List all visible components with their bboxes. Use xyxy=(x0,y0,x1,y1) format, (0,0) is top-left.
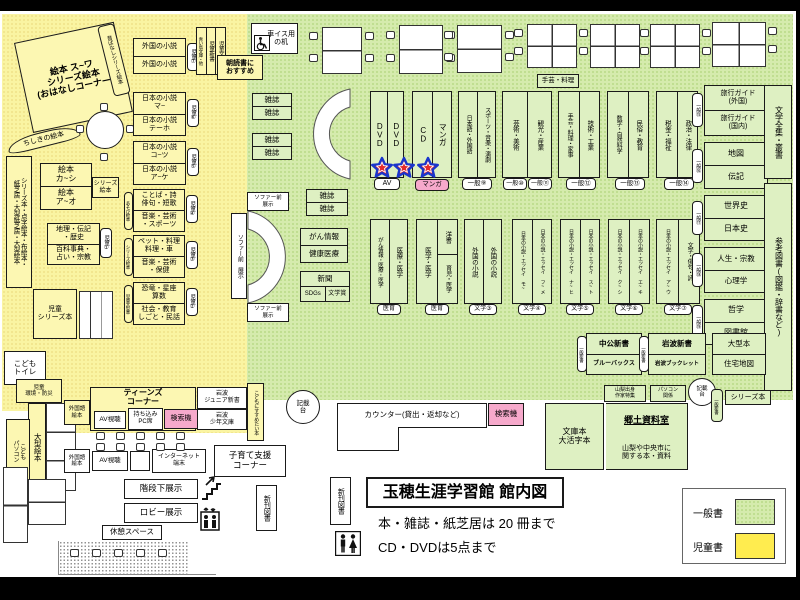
shelf-literature-collections: 文学全集・叢書 xyxy=(764,85,792,179)
sofa-front-display-top: ソファー前 展示 xyxy=(247,192,289,211)
wall-line xyxy=(58,574,216,575)
shelf-maps-biography: 地図伝記 xyxy=(704,142,768,189)
chair xyxy=(768,45,777,53)
kids-environment-shelf: 児童 環境・防災 xyxy=(16,379,62,403)
shelf-general-12: 手芸・料理・家事技術・工業 xyxy=(558,91,600,178)
shelf-dino-society: 恐竜・星座 算数社会・教育 しごと・民話 xyxy=(133,282,185,325)
round-table xyxy=(86,111,124,149)
chair xyxy=(70,549,79,557)
chair xyxy=(768,27,777,35)
service-counter: カウンター(貸出・返却など) xyxy=(337,403,487,428)
chair xyxy=(514,29,523,37)
label-literature-6: 文学⑥ xyxy=(615,304,643,315)
legend-children-label: 児童書 xyxy=(693,539,723,554)
table xyxy=(28,479,66,525)
shelf-travel-guides: 旅行ガイド (外国)旅行ガイド (国内) xyxy=(704,85,772,136)
chair xyxy=(514,47,523,55)
label-literature-5: 文学⑤ xyxy=(566,304,594,315)
search-terminal-teens: 検索機 xyxy=(164,409,198,429)
chair xyxy=(702,29,711,37)
sofa-front-display-side: ソファー前 展示 xyxy=(231,213,247,299)
chair xyxy=(505,31,514,39)
cancer-info-shelf: がん情報健康医療 xyxy=(300,228,348,263)
chair xyxy=(156,443,165,451)
shelf-geo-encyclopedia: 地理・伝記 ・歴史百科事典・ 占い・宗教 xyxy=(47,223,100,265)
table xyxy=(322,27,362,74)
bungakusho-cell: 文学賞 xyxy=(325,287,350,301)
chair xyxy=(136,432,145,440)
chair xyxy=(309,32,318,40)
chair xyxy=(96,432,105,440)
shelf-ehon-aiueo: 絵本 カ~シ絵本 ア~オ xyxy=(40,163,92,210)
label-general-16: 一般⑯ xyxy=(692,149,703,183)
shelf-literature-3: 外国の小説外国の小説 xyxy=(464,219,502,304)
chair xyxy=(96,443,105,451)
new-books-shelf-2: 新刊図書 xyxy=(330,477,351,525)
computer-books-shelf: パソコン 関係 xyxy=(650,385,686,402)
sofa-crescent-lower xyxy=(246,209,288,305)
elevator-icon xyxy=(200,507,220,531)
star-icon xyxy=(370,156,394,180)
foreign-picture-books-1: 外国語 絵本 xyxy=(64,400,90,425)
shelf-life-psychology: 人生・宗教心理学 xyxy=(704,247,768,293)
shelf-large-books-housing-maps: 大型本住宅地図 xyxy=(712,333,766,375)
restroom-icon xyxy=(335,531,361,556)
series-books-shelf: シリーズ本 xyxy=(725,390,771,405)
rule-note-2: CD・DVDは5点まで xyxy=(378,537,496,556)
chair xyxy=(100,103,108,111)
legend-children-swatch xyxy=(735,533,775,559)
series-ehon-box: シリーズ 絵本 xyxy=(92,177,119,198)
label-general-9: 一般⑨ xyxy=(462,178,492,190)
writing-desk-1: 記載 台 xyxy=(286,390,320,424)
label-literature-7: 文学⑦ xyxy=(664,304,692,315)
sofa-crescent-upper xyxy=(312,87,352,181)
shelf-world-japan-history: 世界史日本史 xyxy=(704,195,768,241)
label-general-11: 一般⑪ xyxy=(528,178,552,190)
chair xyxy=(640,47,649,55)
label-general-17: 一般⑰ xyxy=(692,201,703,235)
label-literature-3: 文学③ xyxy=(469,304,497,315)
service-counter-wing xyxy=(337,427,399,451)
shelf-unit xyxy=(79,291,113,339)
yamanashi-authors-shelf: 山梨出身 作家特集 xyxy=(604,385,646,402)
shelf-jp-fiction-ma: 日本の小説 マ~日本の小説 テーホ xyxy=(133,92,186,136)
chair xyxy=(386,31,395,39)
label-medical-1: 医育 xyxy=(377,304,401,315)
category-pill-jido4: 児童④ xyxy=(186,195,198,223)
parenting-support-corner: 子育て支援 コーナー xyxy=(214,445,286,477)
chair xyxy=(579,47,588,55)
shelf-general-13: 数学・自然科学民俗・教育 xyxy=(607,91,649,178)
chair xyxy=(136,443,145,451)
chair xyxy=(505,53,514,61)
label-ippan-shinsho-3: 一般新書 xyxy=(711,389,723,422)
shelf-medical-2: 医学・医学 洋書 育児・医学 xyxy=(416,219,458,304)
category-pill-jido6: 児童⑥ xyxy=(187,99,199,127)
under-stairs-display: 階段下展示 xyxy=(124,479,198,499)
shelf-jp-fiction-ko: 日本の小説 コ~ツ日本の小説 ア~ケ xyxy=(133,141,186,185)
chair xyxy=(176,432,185,440)
shelf-literature-5: 日本の小説・エッセイ ナ~ヒ日本の小説・エッセイ ス~ト xyxy=(560,219,600,304)
kids-series-shelf: 児童 シリーズ本 xyxy=(33,289,77,339)
table xyxy=(712,22,766,67)
chair xyxy=(114,549,123,557)
label-general-15: 一般⑮ xyxy=(692,93,703,127)
label-ippan-shinsho-1: 一般新書 xyxy=(577,336,587,372)
label-literature-4: 文学④ xyxy=(518,304,546,315)
chair xyxy=(365,54,374,62)
label-general-12: 一般⑫ xyxy=(566,178,596,190)
chair xyxy=(444,31,453,39)
shelf-medical-1: がん情報・医療・医学医療・医学 xyxy=(370,219,408,304)
local-history-room: 郷土資料室 山梨や中央市に 関する本・資料 xyxy=(606,403,688,470)
sdgs-cell: SDGs xyxy=(301,287,325,301)
magazine-shelf-1: 雑誌雑誌 xyxy=(252,93,292,120)
legend: 一般書 児童書 xyxy=(682,488,786,564)
chair xyxy=(158,549,167,557)
kids-large-books-pill: 児童大型本 xyxy=(124,285,133,323)
chair xyxy=(309,54,318,62)
morning-reading-box: 朝読書に おすすめ xyxy=(217,55,263,80)
star-icon xyxy=(416,156,440,180)
shelf-general-9: 日本語・外国語スポーツ・音楽・演劇 xyxy=(458,91,496,178)
table xyxy=(527,24,577,68)
map-title: 玉穂生涯学習館 館内図 xyxy=(366,477,564,508)
rest-space-floor xyxy=(58,541,188,575)
av-booth-2: AV視聴 xyxy=(92,451,128,471)
table xyxy=(650,24,700,68)
rule-note-1: 本・雑誌・紙芝居は 20 冊まで xyxy=(378,513,556,532)
label-general-14: 一般⑭ xyxy=(664,178,694,190)
internet-terminal: インターネット 端末 xyxy=(152,449,206,473)
chair xyxy=(176,443,185,451)
star-icon xyxy=(392,156,416,180)
label-general-18: 一般⑱ xyxy=(692,253,703,287)
shelf-general-10-11: 芸術・美術観光・産業 xyxy=(502,91,552,178)
foreign-picture-books-2: 外国語 絵本 xyxy=(64,449,90,473)
shelf-reference-books: 参考図書(図鑑・辞書など) xyxy=(764,183,792,391)
table xyxy=(590,24,640,68)
newspaper-shelf: 新聞 SDGs文学賞 xyxy=(300,271,350,302)
chair xyxy=(100,153,108,161)
magazine-shelf-3: 雑誌雑誌 xyxy=(306,189,348,216)
shelf-pets-cooking: ペット・料理 料理・車音楽・芸術 ・保健 xyxy=(133,235,185,278)
shelf-literature-4: 日本の小説・エッセイ モ~日本の小説・エッセイ フ~メ xyxy=(512,219,552,304)
chair xyxy=(365,32,374,40)
table xyxy=(457,25,502,73)
table xyxy=(3,467,28,543)
handicraft-cooking-sign: 手芸・料理 xyxy=(537,74,579,88)
booth-blank xyxy=(130,451,150,471)
chair xyxy=(136,549,145,557)
category-pill-jido1: 児童① xyxy=(100,228,112,258)
chair xyxy=(386,54,395,62)
shelf-words-poetry: ことば・詩 俳句・短歌音楽・芸術 ・スポーツ xyxy=(133,189,185,232)
chair xyxy=(116,432,125,440)
recommended-kids-books: こどもにすすめたい本 xyxy=(247,383,264,441)
chair xyxy=(92,549,101,557)
chair xyxy=(116,443,125,451)
new-books-shelf-1: 新刊図書 xyxy=(256,485,277,531)
chair xyxy=(579,29,588,37)
rest-space-label: 休憩スペース xyxy=(102,525,162,540)
category-pill-jido2: 児童② xyxy=(186,288,198,316)
stairs-icon xyxy=(200,475,222,501)
shelf-iwanami-shinsho: 岩波新書岩波ブックレット xyxy=(648,333,706,375)
label-general-13: 一般⑬ xyxy=(615,178,645,190)
shelf-literature-6: 日本の小説・エッセイ ク~シ日本の小説・エッセイ エ~キ xyxy=(608,219,650,304)
series-ehon-pill: シリーズ絵本 xyxy=(124,238,133,276)
lobby-display: ロビー展示 xyxy=(124,503,198,523)
category-pill-jido3: 児童③ xyxy=(186,241,198,269)
label-ippan-shinsho-2: 一般新書 xyxy=(639,336,649,372)
bunkobon-room: 文庫本 大活字本 xyxy=(545,403,604,470)
search-terminal-counter: 検索機 xyxy=(488,403,524,426)
magazine-shelf-2: 雑誌雑誌 xyxy=(252,133,292,160)
chair xyxy=(640,29,649,37)
label-manga: マンガ xyxy=(415,179,449,191)
av-booth-1: AV視聴 xyxy=(94,411,126,429)
legend-general-label: 一般書 xyxy=(693,505,723,520)
category-pill-jido5: 児童⑤ xyxy=(187,148,199,176)
floor-map: 絵本 ス~ワ シリーズ絵本 (おはなしコーナー) 昔ばなしシリーズ絵本 ちしきの… xyxy=(0,11,796,577)
label-medical-2: 医育 xyxy=(425,304,449,315)
byo-pc-seat: 持ち込み PC席 xyxy=(128,408,163,430)
table xyxy=(399,25,443,74)
wheelchair-icon xyxy=(254,35,270,51)
shelf-foreign-fiction-kids: 外国の小説外国の小説 xyxy=(133,38,186,74)
chair xyxy=(702,47,711,55)
legend-general-swatch xyxy=(735,499,775,525)
kamishibai-shelf: シリーズ本・点字絵本・布絵本・ 紙芝居・大型紙芝居・大型絵本 xyxy=(6,156,32,288)
play-books-pill: あそび絵本 xyxy=(124,192,133,230)
large-picture-books-shelf: 大型絵本 xyxy=(28,403,46,491)
label-general-10: 一般⑩ xyxy=(503,178,527,190)
iwanami-shonen-shelf: 岩波 少年文庫 xyxy=(197,409,247,430)
chair xyxy=(444,53,453,61)
chair xyxy=(76,125,84,133)
sofa-front-display-bottom: ソファー前 展示 xyxy=(247,303,289,322)
iwanami-junior-shelf: 岩波 ジュニア新書 xyxy=(197,387,247,409)
chair xyxy=(156,432,165,440)
shelf-chuko-shinsho: 中公新書ブルーバックス xyxy=(586,333,642,375)
